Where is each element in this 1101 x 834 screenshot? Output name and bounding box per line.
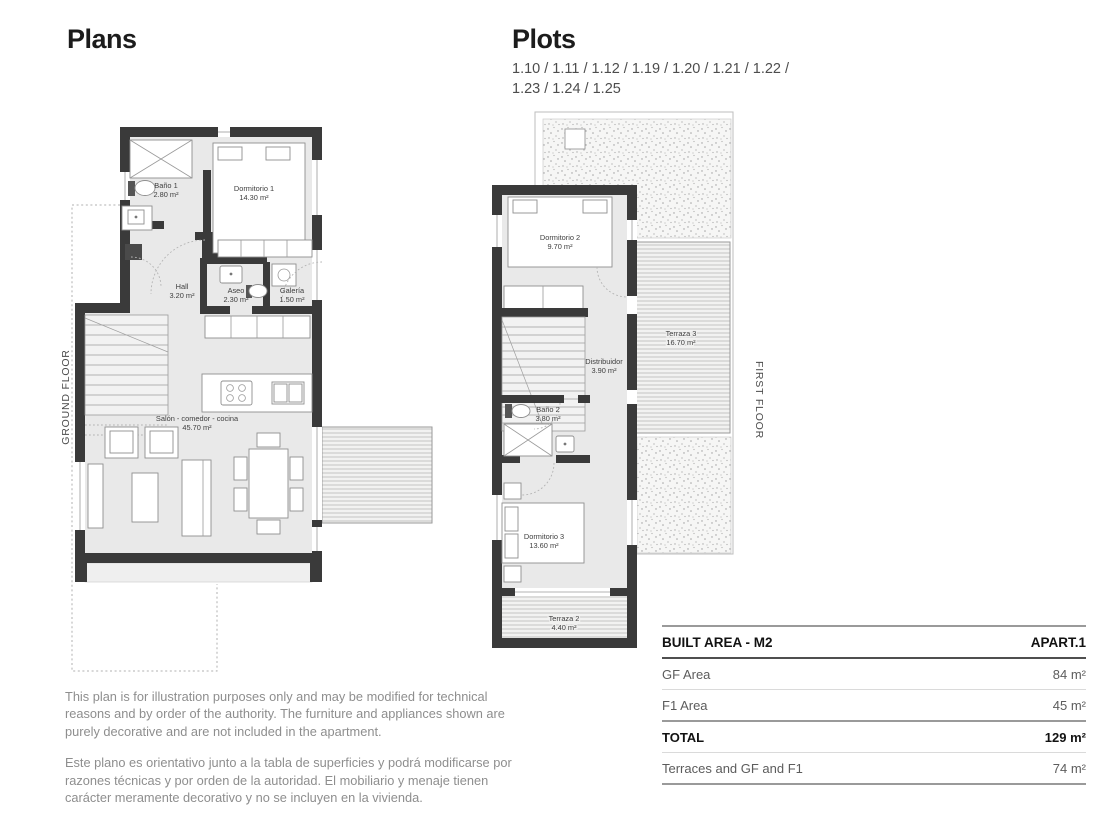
gf-label-galeria-area: 1.50 m² bbox=[279, 295, 305, 304]
ff-label-bano2-area: 3.80 m² bbox=[535, 414, 561, 423]
ff-bed2-icon bbox=[508, 197, 612, 267]
table-cell-value: 129 m² bbox=[1045, 730, 1086, 745]
gf-label-hall-name: Hall bbox=[176, 282, 189, 291]
plot-numbers-line1: 1.10 / 1.11 / 1.12 / 1.19 / 1.20 / 1.21 … bbox=[512, 61, 789, 77]
built-area-table: BUILT AREA - M2 APART.1 GF Area 84 m² F1… bbox=[662, 625, 1086, 785]
table-cell-label: TOTAL bbox=[662, 730, 704, 745]
ff-label-terraza2-area: 4.40 m² bbox=[551, 623, 577, 632]
table-cell-value: 74 m² bbox=[1053, 761, 1086, 776]
ff-label-dormitorio3-area: 13.60 m² bbox=[529, 541, 559, 550]
gf-kitchen-counter-top bbox=[218, 240, 312, 257]
disclaimer-spanish: Este plano es orientativo junto a la tab… bbox=[65, 754, 517, 806]
ff-label-distribuidor-name: Distribuidor bbox=[585, 357, 623, 366]
ff-label-terraza3-name: Terraza 3 bbox=[666, 329, 697, 338]
ff-label-bano2-name: Baño 2 bbox=[536, 405, 559, 414]
ff-label-terraza2-name: Terraza 2 bbox=[549, 614, 580, 623]
table-header-col1: BUILT AREA - M2 bbox=[662, 635, 773, 650]
ff-wall-wardrobe bbox=[500, 308, 588, 317]
gf-label-dormitorio1-name: Dormitorio 1 bbox=[234, 184, 274, 193]
gf-label-hall-area: 3.20 m² bbox=[169, 291, 195, 300]
table-cell-value: 84 m² bbox=[1053, 667, 1086, 682]
gf-label-bano1-name: Baño 1 bbox=[154, 181, 177, 190]
ff-wardrobe-icon bbox=[504, 286, 583, 310]
table-cell-label: Terraces and GF and F1 bbox=[662, 761, 803, 776]
ff-chimney-square bbox=[565, 129, 585, 149]
table-row-total: TOTAL 129 m² bbox=[662, 722, 1086, 753]
ff-label-dormitorio3-name: Dormitorio 3 bbox=[524, 532, 564, 541]
table-header-row: BUILT AREA - M2 APART.1 bbox=[662, 625, 1086, 659]
ff-label-dormitorio2-area: 9.70 m² bbox=[547, 242, 573, 251]
table-row-f1-area: F1 Area 45 m² bbox=[662, 690, 1086, 722]
table-cell-label: GF Area bbox=[662, 667, 710, 682]
first-floor-caption: FIRST FLOOR bbox=[753, 361, 765, 439]
ground-floor-plan: Baño 1 2.80 m² Dormitorio 1 14.30 m² Hal… bbox=[50, 100, 450, 690]
table-cell-value: 45 m² bbox=[1053, 698, 1086, 713]
gf-porch bbox=[85, 563, 312, 582]
disclaimer-block: This plan is for illustration purposes o… bbox=[65, 688, 517, 820]
plan-sheet: Plans Plots 1.10 / 1.11 / 1.12 / 1.19 / … bbox=[0, 0, 1101, 834]
plots-title: Plots bbox=[512, 24, 576, 55]
ff-gravel-bottom bbox=[637, 437, 731, 553]
gf-label-aseo-area: 2.30 m² bbox=[223, 295, 249, 304]
gf-label-salon-name: Salón - comedor - cocina bbox=[156, 414, 239, 423]
gf-label-aseo-name: Aseo bbox=[228, 286, 245, 295]
gf-label-salon-area: 45.70 m² bbox=[182, 423, 212, 432]
gf-label-galeria-name: Galería bbox=[280, 286, 305, 295]
gf-kitchen-island bbox=[202, 374, 312, 412]
gf-kitchen-counter-wall bbox=[205, 316, 310, 338]
ff-label-terraza3-area: 16.70 m² bbox=[666, 338, 696, 347]
table-row-terraces: Terraces and GF and F1 74 m² bbox=[662, 753, 1086, 785]
gf-terrace-deck bbox=[322, 427, 432, 523]
gf-label-dormitorio1-area: 14.30 m² bbox=[239, 193, 269, 202]
ff-label-distribuidor-area: 3.90 m² bbox=[591, 366, 617, 375]
table-cell-label: F1 Area bbox=[662, 698, 708, 713]
ground-floor-caption: GROUND FLOOR bbox=[60, 349, 72, 444]
plot-numbers-line2: 1.23 / 1.24 / 1.25 bbox=[512, 81, 621, 97]
plans-title: Plans bbox=[67, 24, 137, 55]
table-header-col2: APART.1 bbox=[1031, 635, 1086, 650]
disclaimer-english: This plan is for illustration purposes o… bbox=[65, 688, 517, 740]
table-row-gf-area: GF Area 84 m² bbox=[662, 659, 1086, 690]
ff-label-dormitorio2-name: Dormitorio 2 bbox=[540, 233, 580, 242]
first-floor-plan: Dormitorio 2 9.70 m² Distribuidor 3.90 m… bbox=[475, 100, 775, 665]
gf-label-bano1-area: 2.80 m² bbox=[153, 190, 179, 199]
